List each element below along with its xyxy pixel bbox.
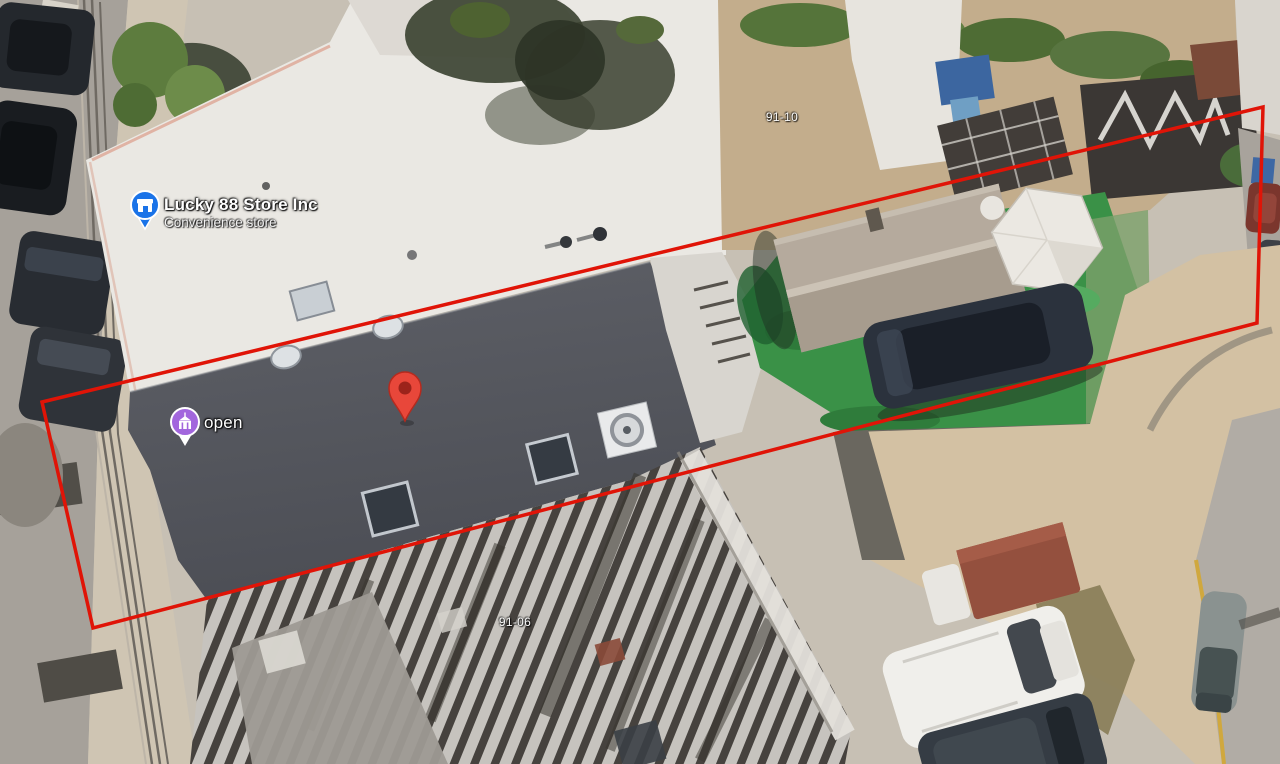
- satellite-map[interactable]: Lucky 88 Store Inc Convenience store ope…: [0, 0, 1280, 764]
- landmark-pin-icon: [168, 406, 202, 448]
- poi-open[interactable]: open: [168, 406, 243, 448]
- poi-title: open: [204, 414, 243, 431]
- poi-text: Lucky 88 Store Inc Convenience store: [164, 196, 318, 230]
- poi-lucky-88-store[interactable]: Lucky 88 Store Inc Convenience store: [128, 189, 318, 231]
- poi-subtitle: Convenience store: [164, 215, 318, 230]
- lot-number-91-06: 91-06: [499, 615, 531, 629]
- poi-title: Lucky 88 Store Inc: [164, 196, 318, 213]
- storefront-pin-icon: [128, 189, 162, 231]
- satellite-imagery: [0, 0, 1280, 764]
- lot-number-91-10: 91-10: [766, 110, 798, 124]
- poi-text: open: [204, 406, 243, 431]
